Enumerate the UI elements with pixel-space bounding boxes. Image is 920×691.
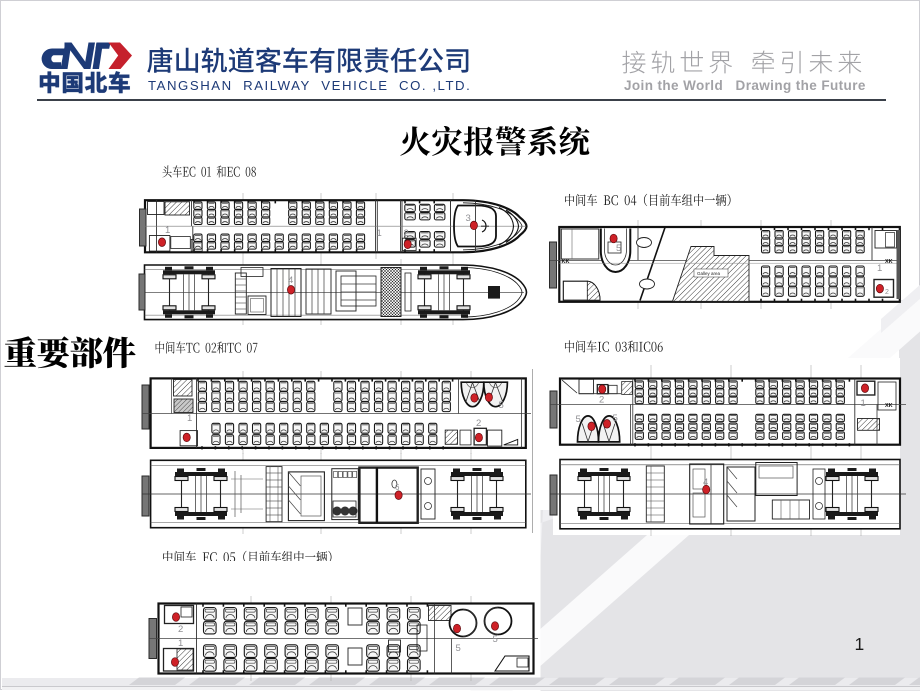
svg-text:3: 3 (466, 213, 471, 224)
svg-text:5: 5 (456, 643, 461, 654)
svg-text:1: 1 (178, 638, 183, 649)
svg-text:1: 1 (165, 225, 170, 236)
svg-text:5: 5 (576, 414, 581, 425)
svg-text:XK: XK (885, 259, 893, 265)
svg-text:5: 5 (613, 413, 618, 424)
svg-text:5: 5 (616, 243, 621, 254)
svg-text:2: 2 (178, 624, 183, 635)
svg-text:KK: KK (562, 259, 570, 265)
svg-text:1: 1 (377, 228, 382, 239)
svg-text:XK: XK (885, 403, 893, 409)
svg-text:4: 4 (288, 275, 293, 286)
svg-text:1: 1 (877, 263, 882, 274)
svg-text:Galley area: Galley area (697, 271, 721, 276)
svg-text:2: 2 (404, 228, 409, 239)
svg-text:2: 2 (885, 289, 889, 296)
svg-text:5: 5 (499, 400, 504, 411)
svg-text:5: 5 (493, 634, 498, 645)
svg-text:1: 1 (187, 413, 192, 424)
svg-text:1: 1 (861, 398, 866, 409)
svg-text:2: 2 (476, 418, 481, 429)
svg-text:2: 2 (599, 395, 604, 406)
